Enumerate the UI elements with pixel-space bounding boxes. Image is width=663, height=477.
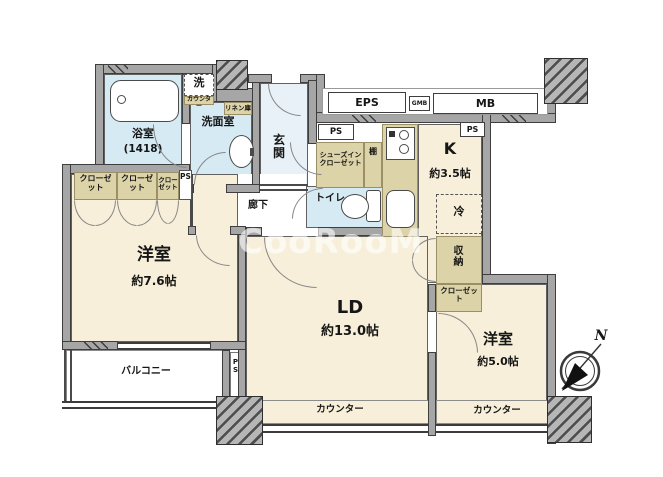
closet-right-label: クローゼット [440, 287, 478, 304]
closet-left-1-label: クローゼット [78, 175, 113, 193]
counter-ld-label: カウンター [280, 405, 400, 416]
wash-basin-faucet-icon [250, 148, 254, 156]
wall-genkan-west [252, 80, 260, 193]
balcony-rail-left-outer [64, 350, 66, 408]
closet-left-2-label: クローゼット [120, 175, 154, 193]
ld-label: LD [300, 298, 400, 319]
ps-box-top-right: PS [460, 122, 485, 137]
ps-closet-box: PS [179, 170, 192, 200]
shoe-in-closet-label: シューズインクローゼット [319, 152, 362, 167]
wall-w76-south-right [210, 341, 246, 350]
washer-counter-label: カウンター [184, 96, 214, 105]
w2-size-label: 約5.0帖 [460, 356, 536, 369]
kitchen-size-label: 約3.5帖 [418, 168, 482, 181]
entrance-step-line-2 [260, 189, 308, 191]
entrance-step-line-1 [260, 184, 308, 186]
pillar-nw [216, 60, 248, 90]
bathtub-drain-icon [117, 95, 126, 104]
wall-genkan-top-left [248, 74, 272, 83]
closet-left-3-label: クローゼット [158, 177, 178, 191]
wall-k-right [482, 112, 491, 283]
mb-box: MB [433, 93, 538, 114]
window-w76 [118, 342, 210, 350]
washroom-label: 洗面室 [190, 116, 246, 129]
window-ld [246, 424, 430, 433]
wall-washroom-south-b [226, 184, 260, 193]
mb-label: MB [476, 97, 495, 110]
w76-label: 洋室 [104, 246, 204, 266]
storage-label: 収納 [452, 246, 465, 268]
toilet-bowl-icon [341, 194, 369, 219]
linen-closet: リネン庫 [224, 102, 252, 115]
eps-label: EPS [355, 96, 379, 109]
wall-w2-top [482, 274, 556, 284]
balcony-rail-left-inner [70, 350, 72, 402]
balcony-rail-bottom [62, 401, 226, 409]
pillar-se [547, 396, 592, 443]
entrance-label: 玄関 [272, 134, 286, 160]
gmb-label: GMB [412, 100, 427, 107]
watermark: CooRooM [238, 222, 438, 262]
balcony-label: バルコニー [100, 366, 192, 378]
floor-plan: バルコニー PS カウンター カウンター EPS GMB MB PS PS [0, 0, 663, 477]
washer-label: 洗 [184, 77, 214, 90]
wall-ticks-4 [108, 65, 128, 73]
ps-top-left-label: PS [330, 127, 342, 137]
w2-label: 洋室 [460, 331, 536, 348]
kitchen-label: K [430, 140, 470, 158]
ps-box-top-left: PS [318, 124, 354, 140]
compass-north-label: N [592, 328, 610, 344]
corridor-label: 廊下 [240, 200, 276, 212]
wall-divider-ld-w2-a [428, 284, 436, 312]
stove-burner-2-icon [399, 144, 409, 154]
wall-balcony-right [222, 350, 230, 400]
eps-box: EPS [328, 92, 406, 113]
fridge-label: 冷 [436, 206, 482, 219]
pillar-south-mid [216, 396, 263, 445]
wall-left-outer [62, 164, 71, 350]
wall-corridor-south-a [188, 226, 196, 235]
stove-burner-1-icon [399, 130, 409, 140]
wall-divider-ld-w2-b [428, 352, 436, 436]
ps-top-right-label: PS [467, 125, 479, 134]
stove-grate-icon [389, 131, 395, 137]
ld-size-label: 約13.0帖 [300, 325, 400, 340]
wall-linen-top [216, 88, 254, 102]
counter-w2-label: カウンター [452, 406, 542, 417]
pillar-ne [544, 58, 588, 104]
wall-bath-left [95, 64, 104, 170]
wall-ticks-3 [84, 342, 108, 349]
shelf-label: 棚 [365, 147, 381, 156]
gmb-box: GMB [409, 96, 430, 111]
w76-size-label: 約7.6帖 [104, 275, 204, 289]
window-w2 [436, 424, 548, 433]
